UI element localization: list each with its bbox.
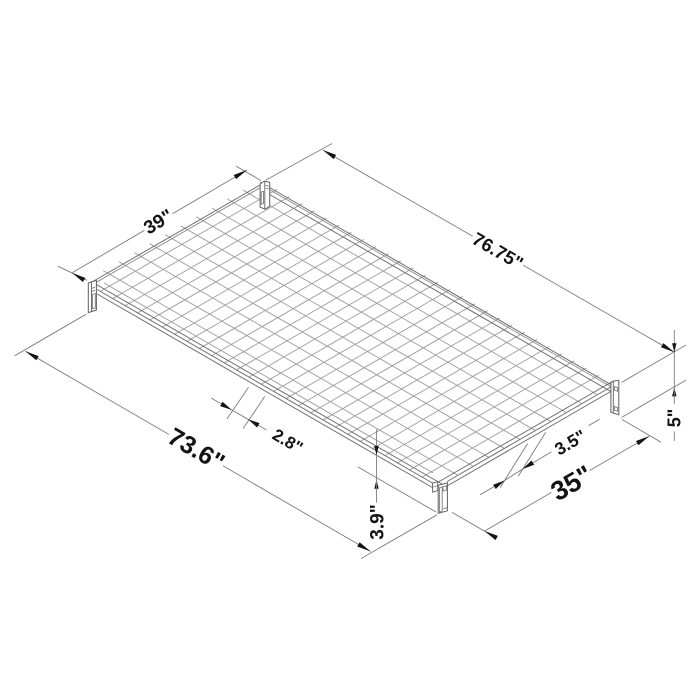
- svg-text:76.75": 76.75": [469, 228, 527, 274]
- svg-text:3.9": 3.9": [367, 504, 388, 539]
- svg-text:35": 35": [546, 460, 598, 507]
- svg-text:5": 5": [665, 409, 685, 428]
- svg-text:39": 39": [140, 206, 177, 240]
- svg-text:73.6": 73.6": [163, 423, 229, 478]
